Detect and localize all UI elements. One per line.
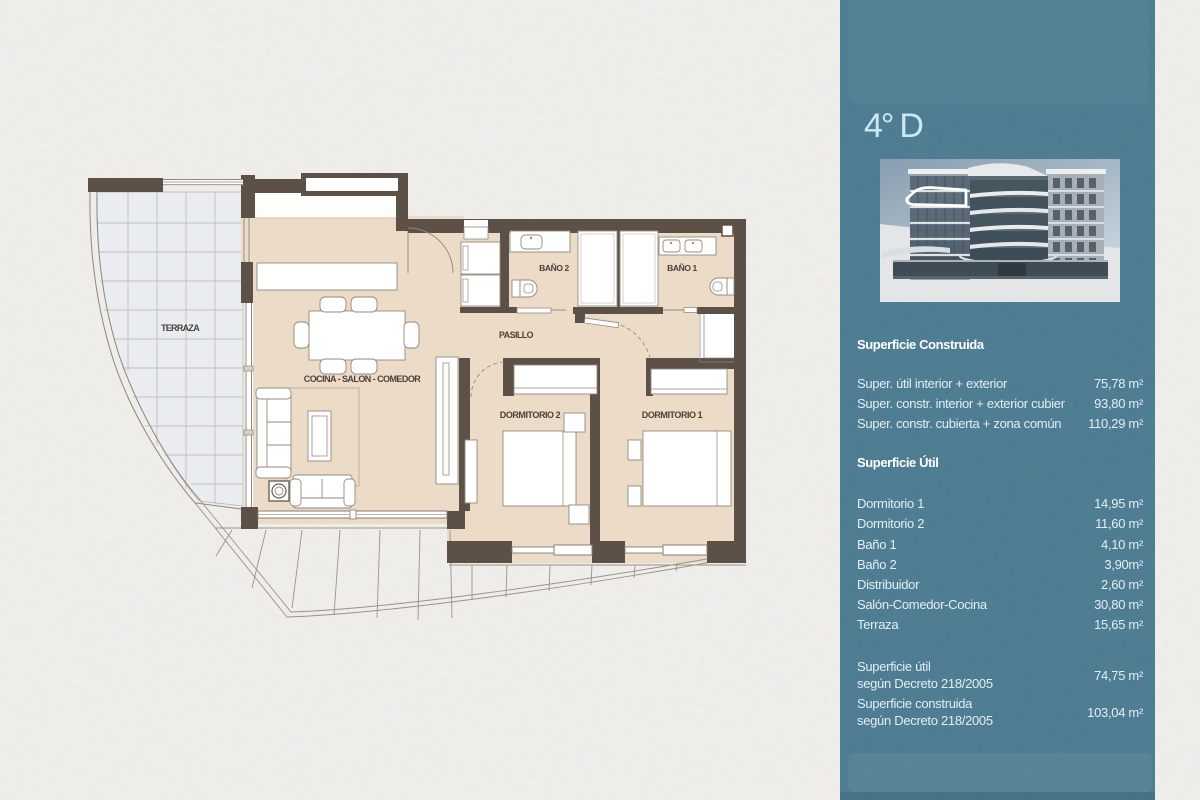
svg-text:3,90m²: 3,90m² — [1104, 557, 1144, 572]
svg-text:Super. constr. interior + exte: Super. constr. interior + exterior cubie… — [857, 396, 1066, 411]
svg-text:según Decreto 218/2005: según Decreto 218/2005 — [857, 676, 993, 691]
svg-text:BAÑO 2: BAÑO 2 — [539, 263, 569, 273]
svg-text:75,78 m²: 75,78 m² — [1094, 376, 1144, 391]
svg-text:Terraza: Terraza — [857, 617, 899, 632]
svg-text:Distribuidor: Distribuidor — [857, 577, 920, 592]
svg-text:DORMITORIO 1: DORMITORIO 1 — [642, 410, 703, 420]
svg-text:Dormitorio 2: Dormitorio 2 — [857, 516, 924, 531]
svg-text:Super. útil interior + exterio: Super. útil interior + exterior — [857, 376, 1008, 391]
svg-text:Superficie construida: Superficie construida — [857, 696, 973, 711]
svg-text:14,95 m²: 14,95 m² — [1094, 496, 1144, 511]
svg-text:PASILLO: PASILLO — [499, 330, 534, 340]
svg-text:COCINA - SALON - COMEDOR: COCINA - SALON - COMEDOR — [304, 374, 422, 384]
svg-text:según Decreto 218/2005: según Decreto 218/2005 — [857, 713, 993, 728]
svg-text:11,60 m²: 11,60 m² — [1095, 516, 1144, 531]
svg-text:110,29 m²: 110,29 m² — [1088, 416, 1144, 431]
svg-text:Superficie Útil: Superficie Útil — [857, 455, 938, 470]
svg-text:15,65 m²: 15,65 m² — [1094, 617, 1144, 632]
svg-text:Baño 1: Baño 1 — [857, 537, 896, 552]
svg-text:30,80 m²: 30,80 m² — [1094, 597, 1144, 612]
svg-text:Superficie Construida: Superficie Construida — [857, 337, 985, 352]
svg-text:Superficie útil: Superficie útil — [857, 659, 931, 674]
svg-text:TERRAZA: TERRAZA — [161, 323, 200, 333]
svg-text:2,60 m²: 2,60 m² — [1101, 577, 1144, 592]
svg-text:103,04 m²: 103,04 m² — [1087, 705, 1144, 720]
svg-text:BAÑO 1: BAÑO 1 — [667, 263, 697, 273]
svg-text:93,80 m²: 93,80 m² — [1094, 396, 1144, 411]
svg-text:4,10 m²: 4,10 m² — [1101, 537, 1144, 552]
svg-text:Dormitorio 1: Dormitorio 1 — [857, 496, 924, 511]
svg-text:Baño 2: Baño 2 — [857, 557, 896, 572]
svg-text:Salón-Comedor-Cocina: Salón-Comedor-Cocina — [857, 597, 988, 612]
svg-text:DORMITORIO 2: DORMITORIO 2 — [500, 410, 561, 420]
svg-text:74,75 m²: 74,75 m² — [1094, 668, 1144, 683]
svg-text:4° D: 4° D — [864, 107, 922, 145]
svg-text:Super. constr. cubierta + zona: Super. constr. cubierta + zona común — [857, 416, 1061, 431]
